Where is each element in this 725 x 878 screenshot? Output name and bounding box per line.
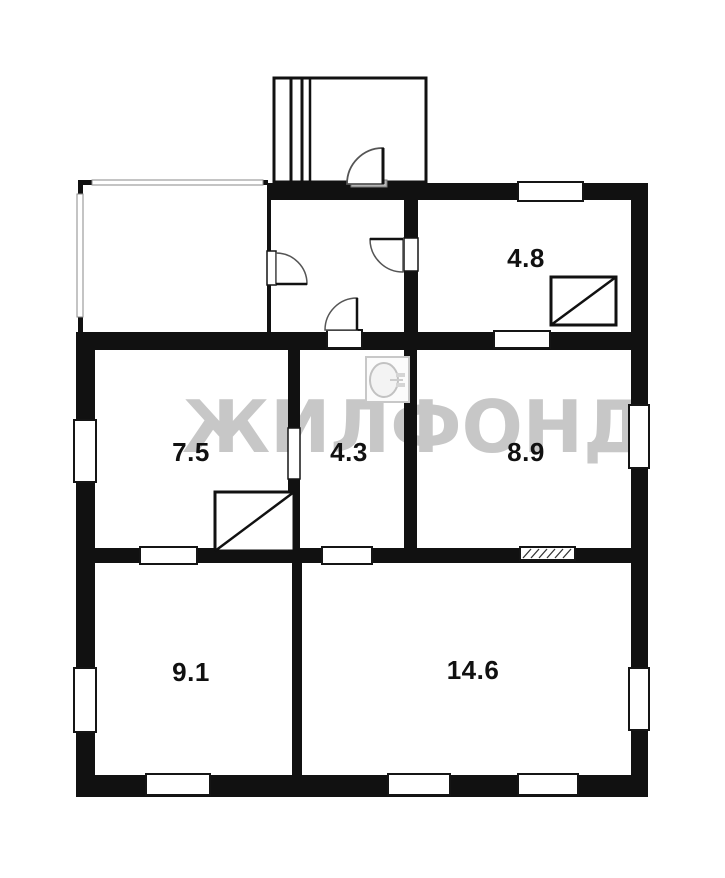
porch-outline	[274, 78, 426, 182]
sink-tap	[396, 373, 405, 377]
door-swing-icon	[276, 253, 307, 284]
room-area-label: 4.8	[486, 243, 566, 273]
door-leaf-hall-veranda	[267, 251, 276, 285]
porch	[274, 78, 426, 182]
door-leaf-room75-room43	[288, 428, 300, 479]
room-area-label: 14.6	[433, 655, 513, 685]
openings	[140, 238, 550, 564]
room-area-label: 7.5	[151, 437, 231, 467]
window-icon	[92, 180, 263, 185]
window-icon	[77, 194, 83, 317]
window-icon	[146, 774, 210, 795]
wall-room91-room146	[292, 560, 302, 777]
veranda	[77, 180, 271, 334]
window-icon	[629, 668, 649, 730]
doorway-room43-room146	[322, 547, 372, 564]
window-icon	[74, 420, 96, 482]
window-icon	[518, 774, 578, 795]
walls	[76, 183, 648, 797]
floorplan-canvas: ЖИЛФОНД	[0, 0, 725, 878]
wall-top	[267, 183, 648, 200]
doors	[276, 148, 403, 330]
doorway-hall-room43	[327, 330, 362, 348]
window-icon	[629, 405, 649, 468]
sink-tap	[396, 383, 405, 387]
window-icon	[74, 668, 96, 732]
door-swing-icon	[325, 298, 357, 330]
window-icon	[518, 182, 583, 201]
doorway-room48-room89	[494, 331, 550, 348]
doorway-room75-room91	[140, 547, 197, 564]
room-area-label: 9.1	[151, 657, 231, 687]
door-leaf-hall-room48	[404, 238, 418, 271]
windows	[74, 182, 649, 795]
window-icon	[388, 774, 450, 795]
door-swing-icon	[370, 239, 403, 272]
sink-icon	[366, 357, 409, 402]
room-area-label: 4.3	[309, 437, 389, 467]
door-swing-icon	[347, 148, 383, 184]
vent-icon	[520, 547, 575, 560]
room-area-label: 8.9	[486, 437, 566, 467]
